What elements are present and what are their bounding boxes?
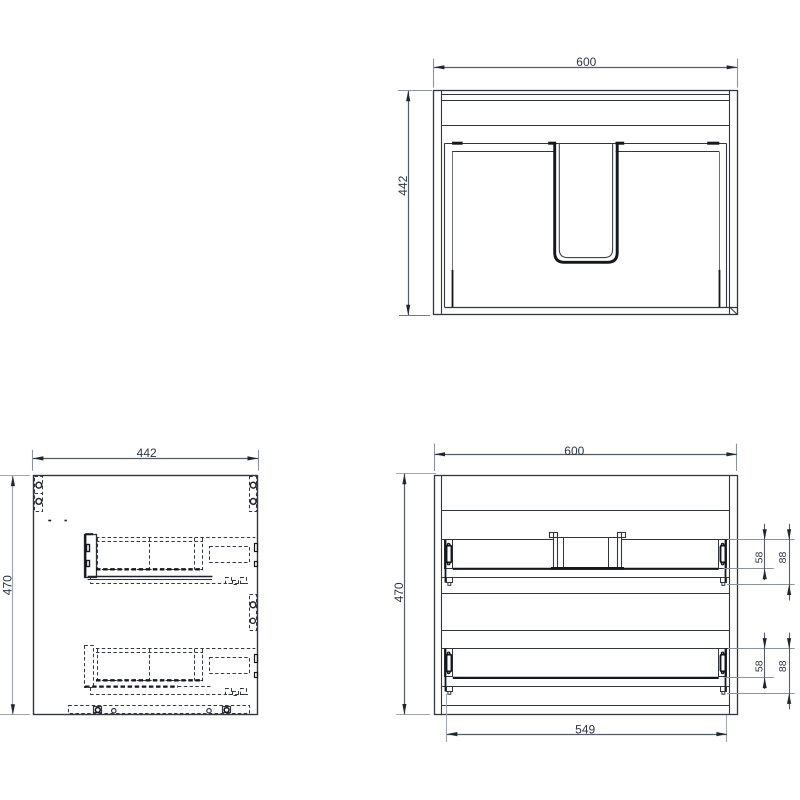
svg-text:442: 442 [137,446,157,460]
svg-text:549: 549 [575,722,595,736]
svg-text:600: 600 [564,444,584,458]
svg-text:88: 88 [777,552,789,564]
svg-text:600: 600 [576,55,596,69]
svg-text:442: 442 [396,175,410,195]
svg-text:88: 88 [777,660,789,672]
svg-text:58: 58 [753,552,765,564]
svg-text:58: 58 [753,660,765,672]
svg-text:470: 470 [1,575,15,595]
svg-text:470: 470 [392,582,406,602]
